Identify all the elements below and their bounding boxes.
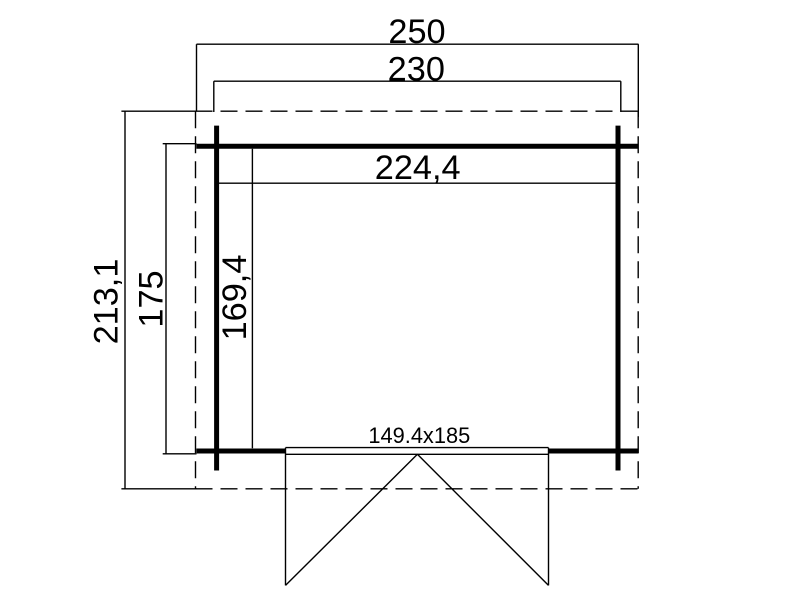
svg-text:230: 230 (388, 51, 445, 89)
svg-text:213,1: 213,1 (87, 259, 125, 345)
svg-text:175: 175 (133, 270, 171, 327)
svg-text:169,4: 169,4 (216, 255, 254, 341)
svg-text:224,4: 224,4 (375, 149, 461, 187)
svg-text:149.4x185: 149.4x185 (368, 423, 470, 448)
svg-text:250: 250 (388, 13, 445, 51)
